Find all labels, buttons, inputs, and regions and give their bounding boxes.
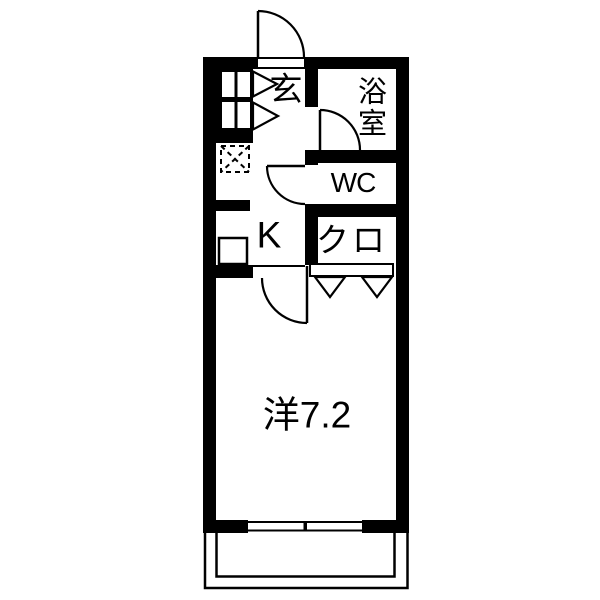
refrigerator-space [221,146,249,172]
hall-wall-mid [305,150,318,165]
closet-label: クロ [316,224,388,257]
entrance-threshold-top [258,57,304,59]
bath-wc-wall [318,150,396,163]
main-window [248,521,362,532]
room-door-header-line [253,265,305,267]
kitchen-stub-wall [216,200,250,211]
entrance-label: 玄 [270,73,303,106]
kitchen-sink [219,238,247,264]
left-wall [203,57,216,533]
shoe-cabinet-divider-top [235,72,238,97]
entrance-door [258,11,304,57]
main-room-label: 洋7.2 [263,397,351,434]
closet-door-v-right [362,277,392,297]
window-mullion [304,521,308,532]
toilet-label: WC [331,169,376,197]
closet-door-v-left [315,277,345,297]
bottom-wall-right [362,520,409,533]
balcony-outer-rail [205,533,408,588]
balcony-inner-rail [217,533,395,577]
entrance-door-swing-arc [258,11,304,57]
shoe-cabinet-divider-bottom [235,102,238,128]
closet-door [310,264,393,297]
refrigerator-x-line-2 [221,146,249,172]
balcony [205,533,408,588]
hall-bath-wall-upper [305,69,318,107]
main-room-door-swing-arc [262,278,307,323]
toilet-door [267,166,305,204]
bathroom-label: 浴室 [355,76,384,140]
closet-door-track [310,264,393,276]
bottom-wall-left [203,520,248,533]
kitchen-label: K [257,217,282,254]
toilet-door-swing-arc [267,166,305,204]
main-room-door [262,266,307,323]
entrance-threshold-bottom [258,67,304,69]
kitchen-room-wall [203,265,253,278]
top-wall-right [304,57,409,69]
floor-plan: 玄 浴室 WC クロ K 洋7.2 [0,0,600,600]
wc-closet-wall [305,204,396,217]
right-wall [396,57,409,533]
